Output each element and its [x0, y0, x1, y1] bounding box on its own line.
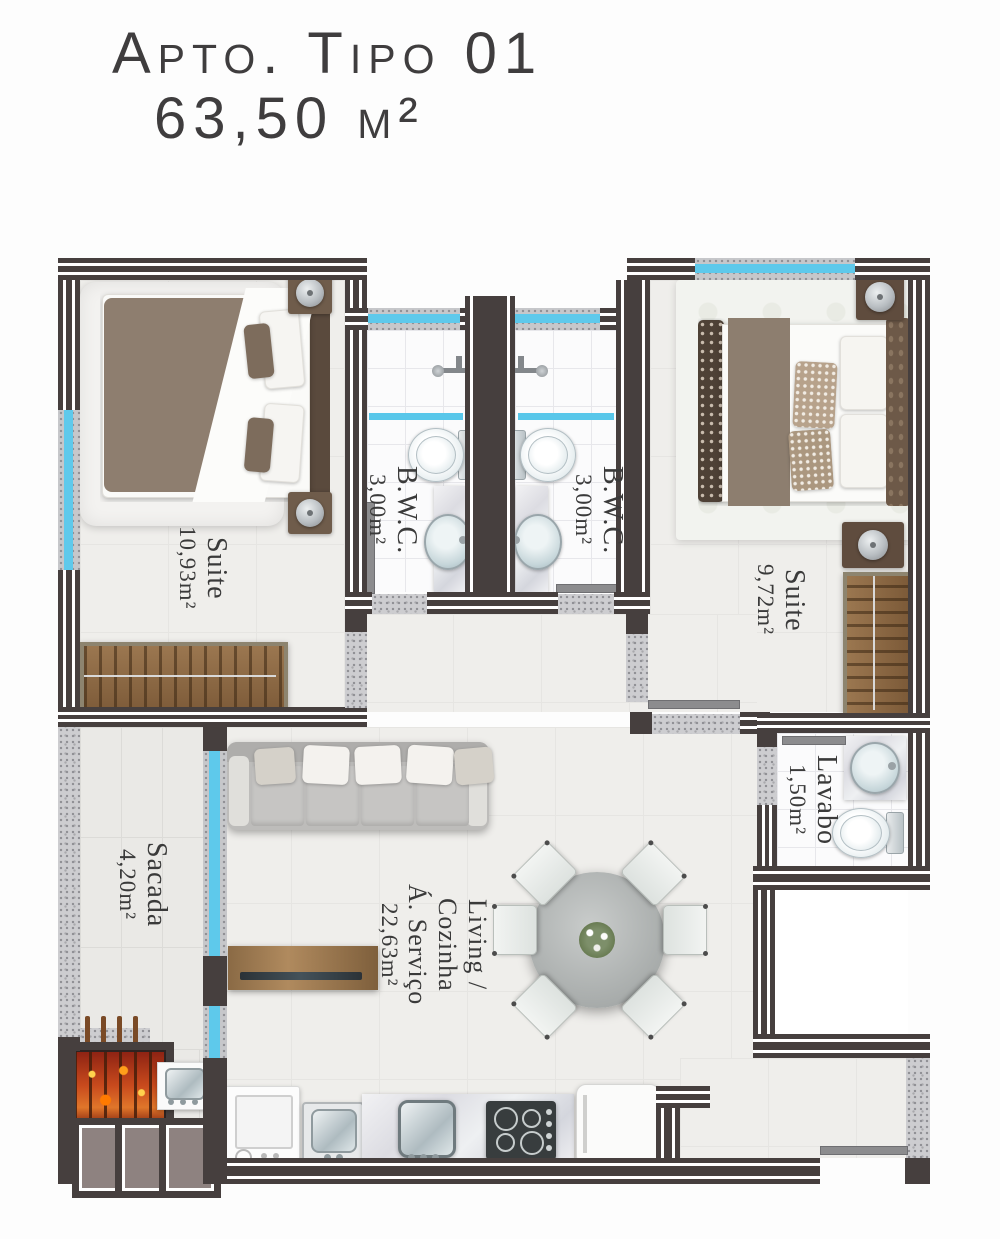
tv-rack	[228, 946, 378, 990]
wall-segment	[203, 956, 227, 1006]
wall-segment	[757, 733, 777, 747]
suite2-nightstand	[856, 274, 904, 320]
washing-machine	[224, 1086, 300, 1166]
wall-segment	[656, 1086, 710, 1108]
room-label-bwc2: B.W.C. 3,00m²	[566, 446, 628, 574]
toilet-seat	[416, 436, 456, 474]
door-threshold	[345, 632, 367, 708]
cooktop-burner	[520, 1131, 544, 1155]
wall-segment	[58, 258, 367, 280]
bwc2-shower-icon	[512, 356, 548, 388]
bed-cushion	[792, 361, 837, 429]
wall-segment	[905, 1158, 930, 1184]
sink-faucet	[192, 1099, 198, 1105]
room-area: 3,00m²	[570, 446, 596, 574]
suite2-double-bed	[698, 318, 910, 506]
room-name: B.W.C.	[596, 446, 628, 574]
room-label-lavabo: Lavabo 1,50m²	[780, 734, 842, 866]
sofa-pillow	[454, 746, 495, 785]
bwc2-washbasin	[514, 514, 562, 570]
window	[508, 308, 600, 330]
shower-head	[536, 365, 548, 377]
window	[58, 410, 80, 570]
room-area: 3,00m²	[364, 446, 390, 574]
bwc1-shower-icon	[432, 356, 468, 388]
barbecue-fire	[74, 1052, 164, 1126]
wall-segment	[753, 1034, 930, 1058]
sofa-armrest	[229, 756, 249, 826]
room-name: B.W.C.	[390, 446, 422, 574]
dining-chair	[663, 905, 707, 955]
barbecue-sink	[165, 1068, 205, 1100]
wall-segment	[908, 280, 930, 868]
plan-title-line1: Apto. Tipo 01	[112, 22, 543, 87]
door-threshold	[626, 634, 648, 702]
laundry-tank	[302, 1102, 364, 1166]
sofa-pillow	[254, 747, 296, 786]
wall-segment	[614, 592, 650, 614]
wardrobe-rail	[873, 576, 875, 710]
wall-segment	[753, 866, 930, 890]
bed-pillow	[840, 414, 888, 488]
bwc2-door-leaf	[556, 584, 622, 593]
wall-segment	[465, 296, 515, 614]
entry-threshold	[906, 1058, 930, 1158]
bwc1-shower-glass	[369, 413, 463, 420]
wall-segment	[345, 614, 367, 632]
lavabo-toilet	[832, 806, 904, 858]
lavabo-faucet	[888, 762, 896, 770]
wall-segment	[58, 1037, 80, 1051]
room-name: Living / Cozinha	[432, 852, 492, 1038]
suite1-double-bed	[100, 288, 330, 502]
bwc2-toilet	[508, 426, 574, 482]
cooktop	[486, 1101, 556, 1160]
sink-faucet	[180, 1099, 186, 1105]
plan-title: Apto. Tipo 01 63,50 m²	[112, 22, 543, 152]
wall-segment	[753, 890, 775, 1034]
bwc2-shower-glass	[518, 413, 614, 420]
room-label-suite1: Suite 10,93m²	[158, 498, 232, 638]
room-area: 10,93m²	[174, 498, 200, 638]
bed-pillow	[840, 336, 888, 410]
entry-floor	[680, 1058, 906, 1158]
wall-segment	[58, 570, 80, 709]
wall-segment	[58, 280, 80, 410]
room-name: Sacada	[140, 818, 172, 952]
wall-segment	[58, 707, 367, 727]
cooktop-knob	[546, 1109, 552, 1115]
cooktop-burner	[494, 1107, 518, 1131]
room-label-living: Living / Cozinha Á. Serviço 22,63m²	[396, 852, 492, 1038]
table-lamp	[858, 530, 888, 560]
suite2-nightstand	[842, 522, 904, 568]
room-label-sacada: Sacada 4,20m²	[106, 818, 172, 952]
cooktop-burner	[496, 1133, 515, 1152]
glass-door	[203, 1006, 227, 1058]
wall-segment	[626, 614, 648, 634]
wall-segment	[345, 592, 372, 614]
bed-headboard	[886, 318, 910, 506]
sofa-pillow	[354, 745, 402, 785]
wall-segment	[203, 727, 227, 751]
entry-door-leaf	[820, 1146, 908, 1155]
bed-cushion	[244, 417, 275, 473]
corridor-floor	[365, 614, 757, 712]
wall-segment	[58, 1051, 76, 1184]
room-area: 22,63m²	[376, 852, 402, 1038]
room-name: Suite	[778, 538, 810, 662]
room-name: Lavabo	[810, 734, 842, 866]
door-threshold	[757, 747, 777, 805]
wall-segment	[630, 712, 652, 734]
cooktop-knob	[546, 1133, 552, 1139]
tv	[240, 972, 362, 980]
room-area: 4,20m²	[114, 818, 140, 952]
wall-segment	[427, 592, 558, 614]
wall-segment	[213, 1158, 820, 1184]
room-name: Á. Serviço	[402, 852, 432, 1038]
room-label-bwc1: B.W.C. 3,00m²	[360, 446, 422, 574]
room-name: Suite	[200, 498, 232, 638]
bed-cushion	[788, 429, 834, 492]
room-area: 1,50m²	[784, 734, 810, 866]
table-lamp	[296, 279, 324, 307]
glass-partition	[203, 751, 227, 956]
balcony-railing	[58, 727, 80, 1037]
bed-cushion	[243, 323, 275, 379]
sofa-pillow	[302, 745, 350, 785]
bed-runner	[728, 318, 790, 506]
tank-basin	[311, 1109, 357, 1153]
wall-segment	[757, 713, 930, 733]
suite2-door-leaf	[648, 700, 740, 709]
flower-centerpiece	[579, 922, 615, 958]
suite2-wardrobe	[843, 572, 913, 722]
shower-head	[432, 365, 444, 377]
table-lamp	[296, 499, 324, 527]
room-label-suite2: Suite 9,72m²	[742, 538, 810, 662]
door-threshold	[372, 594, 427, 614]
washer-door	[235, 1095, 293, 1149]
dining-chair	[493, 905, 537, 955]
table-lamp	[865, 282, 895, 312]
fridge-handle	[583, 1095, 587, 1153]
room-area: 9,72m²	[752, 538, 778, 662]
suite1-nightstand	[288, 492, 332, 534]
hall-cutout	[775, 890, 908, 1034]
toilet-seat	[840, 815, 882, 851]
door-threshold	[558, 594, 614, 614]
cooktop-burner	[522, 1109, 541, 1128]
wall-segment	[203, 1058, 227, 1184]
cooktop-knob	[546, 1145, 552, 1151]
sink-faucet	[168, 1099, 174, 1105]
window	[695, 258, 855, 280]
wardrobe-rail	[84, 675, 276, 677]
sofa-pillow	[406, 744, 455, 785]
sofa	[227, 742, 489, 832]
window	[368, 308, 460, 330]
bed-footboard	[698, 320, 724, 502]
door-threshold	[652, 714, 740, 734]
refrigerator	[576, 1084, 660, 1166]
kitchen-sink	[398, 1100, 456, 1158]
floor-plan-page: Apto. Tipo 01 63,50 m²	[0, 0, 1000, 1239]
plan-title-area: 63,50 m²	[154, 87, 543, 152]
toilet-seat	[528, 436, 568, 474]
cooktop-knob	[546, 1121, 552, 1127]
